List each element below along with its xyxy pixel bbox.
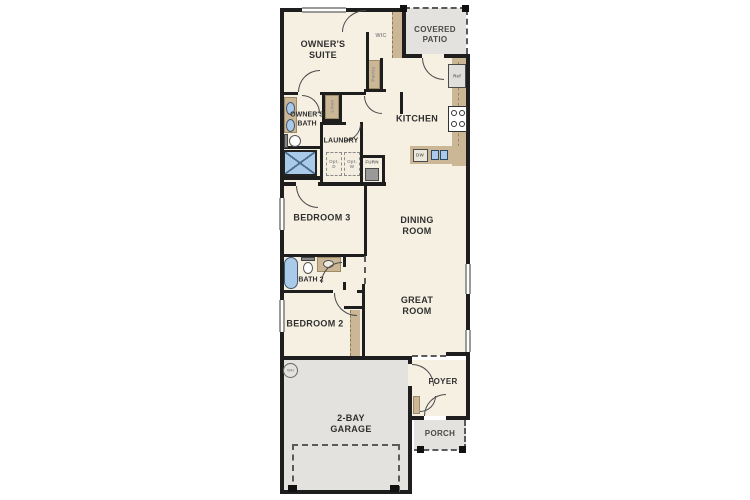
wall	[408, 416, 424, 420]
room-label-garage: 2-BAY GARAGE	[330, 413, 371, 436]
wall	[343, 257, 346, 267]
hall-great-room-opening	[364, 256, 366, 284]
garage-door-jamb	[288, 485, 297, 492]
wall	[282, 92, 298, 95]
shower	[283, 150, 317, 176]
wall	[364, 89, 386, 92]
label-ref: Ref	[453, 73, 461, 78]
great-room-foyer-opening	[412, 355, 446, 357]
wall	[320, 92, 366, 95]
wall	[364, 186, 367, 256]
post	[400, 5, 407, 12]
room-label-laundry: LAUNDRY	[324, 138, 359, 147]
kitchen-sink	[440, 150, 448, 160]
bedroom2-closet-shelf	[350, 310, 360, 356]
kitchen-sink	[431, 150, 439, 160]
wall	[382, 155, 385, 182]
window	[465, 330, 471, 352]
label-opt-w: Opt. W	[347, 159, 357, 169]
room-label-bedroom3: BEDROOM 3	[293, 212, 350, 223]
patio-dashed-edge	[466, 9, 468, 54]
label-linen: Linen	[329, 100, 334, 113]
garage-door-outline	[292, 444, 398, 446]
post	[459, 446, 466, 453]
room-label-foyer: FOYER	[428, 377, 457, 387]
window	[279, 198, 285, 230]
room-label-kitchen: KITCHEN	[396, 113, 438, 124]
room-label-bath2: BATH 2	[298, 277, 323, 286]
garage-door-jamb	[390, 485, 399, 492]
label-opt-d: Opt. D	[329, 159, 339, 169]
wall	[380, 58, 383, 92]
wall	[402, 8, 406, 58]
wall	[446, 416, 470, 420]
patio-dashed-edge	[404, 7, 466, 9]
label-dw: DW	[416, 152, 424, 157]
wall	[366, 32, 369, 92]
wall	[343, 282, 346, 290]
stove	[448, 106, 467, 132]
label-wic: WIC	[375, 33, 386, 39]
room-label-owners-suite: OWNER'S SUITE	[301, 39, 346, 62]
wic-shelf	[392, 12, 402, 58]
room-label-bedroom2: BEDROOM 2	[286, 318, 343, 329]
label-furn: FURN	[365, 159, 378, 164]
wall	[318, 182, 386, 186]
wall	[360, 122, 363, 182]
window	[465, 264, 471, 294]
wall	[282, 290, 333, 293]
bathtub	[284, 257, 298, 289]
wall	[444, 54, 470, 58]
label-wh: WH	[287, 368, 294, 373]
post	[417, 446, 424, 453]
toilet	[300, 257, 316, 276]
floor-plan: OWNER'S SUITE WIC COVERED PATIO Pantry R…	[0, 0, 750, 500]
wall	[282, 176, 322, 180]
wall	[339, 92, 342, 122]
wall	[362, 284, 365, 356]
room-label-owners-bath: OWNER'S BATH	[290, 111, 324, 129]
room-label-dining-room: DINING ROOM	[400, 215, 433, 238]
post	[462, 5, 469, 12]
furnace-unit	[365, 168, 379, 181]
wall	[320, 122, 323, 182]
wall	[357, 290, 365, 293]
wall	[280, 356, 412, 360]
toilet	[284, 133, 302, 149]
foyer-closet-shelf	[413, 396, 420, 414]
wall	[282, 254, 366, 257]
wall	[282, 182, 296, 186]
room-label-great-room: GREAT ROOM	[401, 295, 433, 318]
wall	[280, 8, 284, 494]
window	[279, 300, 285, 332]
wall	[446, 352, 466, 356]
room-label-porch: PORCH	[425, 429, 455, 439]
wall	[400, 92, 403, 114]
room-label-covered-patio: COVERED PATIO	[414, 25, 456, 45]
label-pantry: Pantry	[370, 66, 375, 81]
window	[302, 7, 346, 13]
